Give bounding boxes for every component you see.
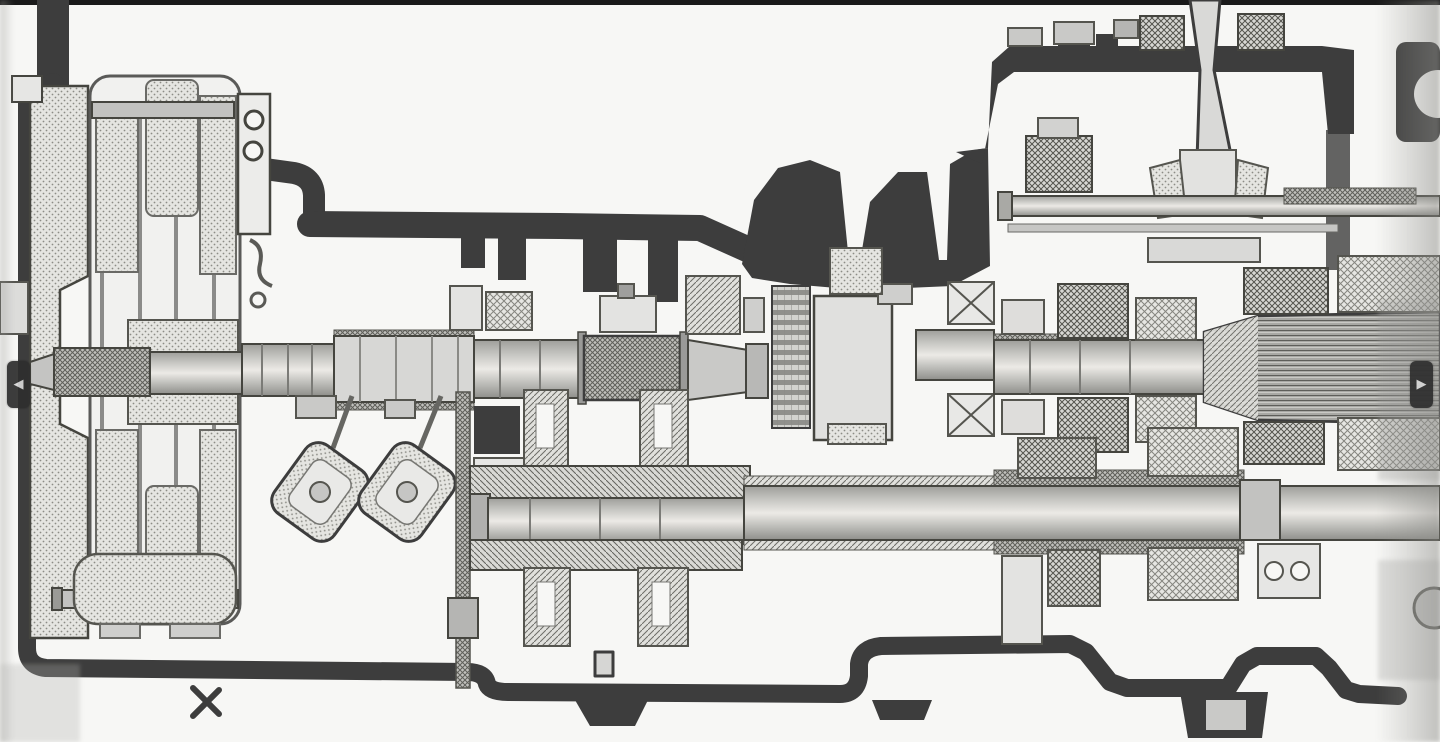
- prev-arrow-icon: ◀: [14, 378, 24, 391]
- next-button[interactable]: ▶: [1410, 361, 1433, 408]
- image-viewer: ◀ ▶: [0, 0, 1440, 742]
- dog-teeth-ring: [772, 286, 810, 428]
- input-shaft: [30, 348, 242, 396]
- gear-drum: [814, 296, 892, 440]
- gearbox-sectional-diagram: [0, 0, 1440, 742]
- ball-bearing: [1258, 544, 1320, 598]
- next-arrow-icon: ▶: [1417, 378, 1427, 391]
- prev-button[interactable]: ◀: [7, 361, 30, 408]
- scan-top-border: [0, 0, 1440, 5]
